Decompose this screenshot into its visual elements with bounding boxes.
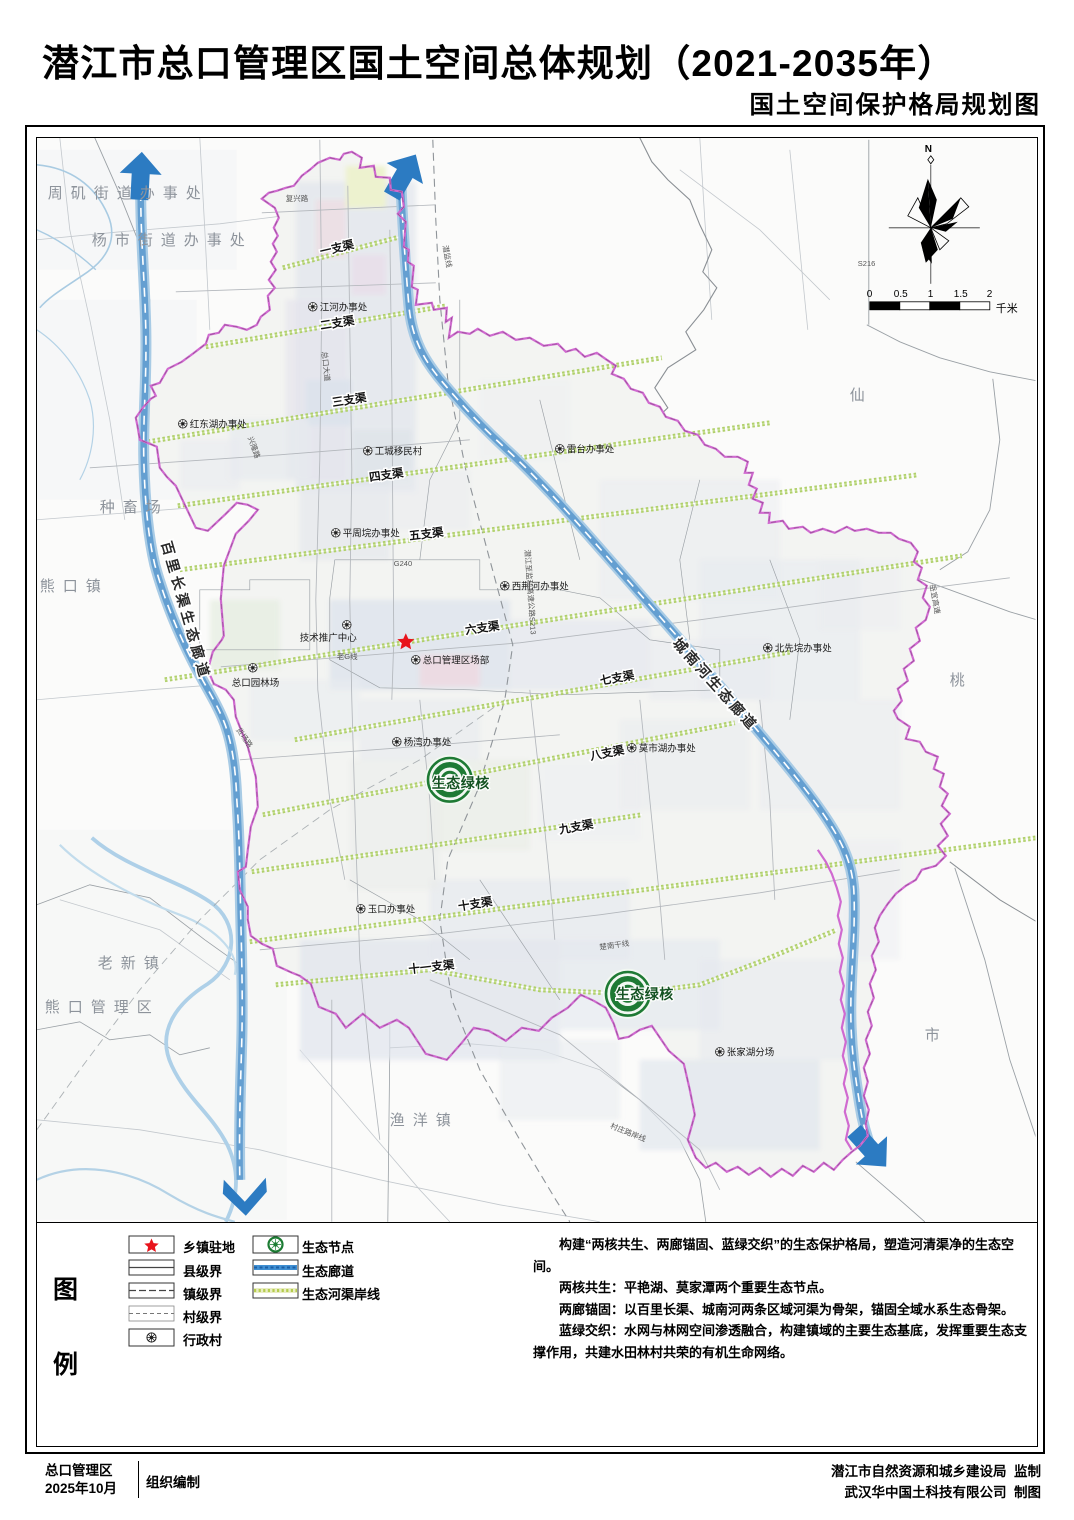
svg-text:种畜场: 种畜场: [100, 499, 169, 516]
svg-text:北先垸办事处: 北先垸办事处: [775, 642, 833, 654]
svg-text:张家湖分场: 张家湖分场: [727, 1046, 775, 1058]
svg-text:红东湖办事处: 红东湖办事处: [190, 418, 248, 430]
svg-text:1.5: 1.5: [954, 289, 968, 300]
svg-text:老新镇: 老新镇: [98, 955, 167, 972]
svg-text:江河办事处: 江河办事处: [320, 301, 368, 313]
svg-text:熊口镇: 熊口镇: [40, 578, 109, 595]
svg-text:生态绿核: 生态绿核: [432, 775, 490, 791]
svg-text:总口园林场: 总口园林场: [232, 677, 280, 689]
svg-text:0.5: 0.5: [894, 289, 908, 300]
svg-text:复兴路: 复兴路: [286, 193, 309, 203]
svg-text:生态绿核: 生态绿核: [616, 986, 674, 1002]
svg-text:S216: S216: [858, 259, 876, 268]
svg-text:N: N: [925, 144, 932, 155]
svg-text:0: 0: [867, 289, 873, 300]
svg-text:平周垸办事处: 平周垸办事处: [343, 527, 401, 539]
svg-text:熊口管理区: 熊口管理区: [45, 999, 160, 1016]
svg-text:千米: 千米: [996, 302, 1018, 315]
svg-text:仙: 仙: [850, 387, 865, 404]
svg-text:1: 1: [928, 289, 934, 300]
svg-text:玉口办事处: 玉口办事处: [368, 903, 416, 915]
svg-text:2: 2: [987, 289, 993, 300]
svg-text:杨市街道办事处: 杨市街道办事处: [92, 232, 253, 249]
svg-text:渔洋镇: 渔洋镇: [390, 1112, 459, 1129]
svg-text:老G线: 老G线: [337, 651, 358, 661]
svg-text:桃: 桃: [950, 672, 965, 689]
svg-text:西荆河办事处: 西荆河办事处: [512, 580, 570, 592]
svg-text:工城移民村: 工城移民村: [375, 445, 423, 457]
svg-text:雷台办事处: 雷台办事处: [567, 443, 615, 455]
svg-text:莫市湖办事处: 莫市湖办事处: [639, 742, 697, 754]
svg-text:G240: G240: [394, 559, 412, 568]
svg-text:市: 市: [925, 1027, 940, 1044]
svg-text:总口管理区场部: 总口管理区场部: [423, 654, 490, 666]
svg-text:周矶街道办事处: 周矶街道办事处: [48, 185, 209, 202]
svg-text:杨湾办事处: 杨湾办事处: [404, 736, 452, 748]
svg-text:技术推广中心: 技术推广中心: [300, 632, 358, 644]
